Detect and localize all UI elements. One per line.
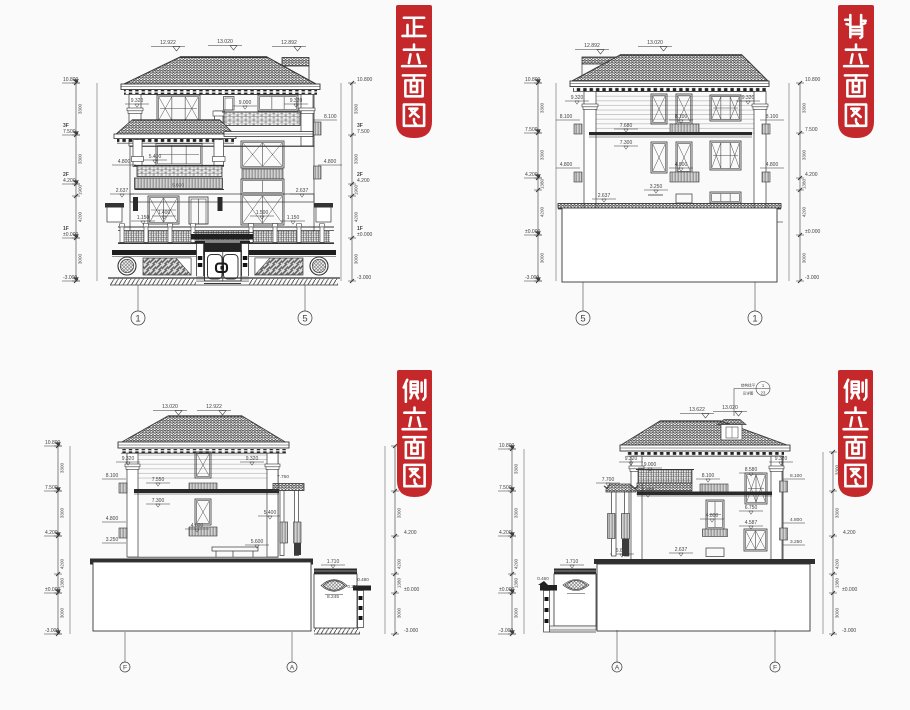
svg-text:±0.000: ±0.000 [45,587,60,593]
svg-text:3300: 3300 [60,507,65,518]
svg-text:12.922: 12.922 [206,404,222,410]
svg-text:5.400: 5.400 [149,154,162,160]
svg-text:±0.000: ±0.000 [842,587,857,593]
svg-text:-3.000: -3.000 [404,628,418,634]
svg-text:8.100: 8.100 [324,114,337,120]
svg-text:13.020: 13.020 [647,40,663,46]
svg-text:12.922: 12.922 [160,40,176,46]
svg-text:7.300: 7.300 [620,140,633,146]
svg-text:4.800: 4.800 [790,517,802,523]
svg-text:0.480: 0.480 [357,577,369,582]
svg-text:5: 5 [302,314,307,325]
svg-text:4200: 4200 [397,558,402,569]
svg-text:3300: 3300 [514,507,519,518]
svg-text:10.800: 10.800 [525,77,541,83]
svg-text:7.300: 7.300 [152,498,165,504]
svg-text:3000: 3000 [397,607,402,618]
svg-text:4.200: 4.200 [357,178,370,184]
svg-text:3300: 3300 [802,149,807,160]
svg-text:5.600: 5.600 [251,539,264,545]
svg-text:7.550: 7.550 [152,477,165,483]
svg-text:±0.000: ±0.000 [404,587,419,593]
svg-text:8.100: 8.100 [790,473,802,479]
svg-text:4200: 4200 [60,558,65,569]
svg-text:7.680: 7.680 [620,123,633,129]
svg-text:9.320: 9.320 [290,98,303,104]
svg-text:3000: 3000 [354,253,359,264]
svg-text:9.320: 9.320 [775,456,788,462]
svg-text:3000: 3000 [540,252,545,263]
svg-text:10.800: 10.800 [805,77,821,83]
svg-text:12.892: 12.892 [584,43,600,49]
svg-text:8.100: 8.100 [675,114,688,120]
svg-text:1: 1 [135,314,140,325]
svg-text:4.200: 4.200 [805,172,818,178]
svg-text:4.800: 4.800 [191,523,204,529]
svg-text:1.710: 1.710 [566,559,579,565]
svg-text:8.580: 8.580 [745,467,758,473]
svg-text:5: 5 [580,314,585,325]
svg-text:13.622: 13.622 [689,407,705,413]
svg-text:5.600: 5.600 [172,183,184,189]
svg-text:8.100: 8.100 [106,473,119,479]
svg-text:-3.000: -3.000 [499,628,513,634]
svg-text:7.760: 7.760 [277,474,289,480]
svg-text:-3.000: -3.000 [805,275,819,281]
svg-text:-3.000: -3.000 [357,275,371,281]
svg-text:6.750: 6.750 [745,505,758,511]
svg-text:3300: 3300 [802,102,807,113]
svg-text:±0.000: ±0.000 [525,229,540,235]
svg-text:4.200: 4.200 [404,530,417,536]
svg-text:3000: 3000 [514,607,519,618]
svg-text:3000: 3000 [60,607,65,618]
svg-text:1.150: 1.150 [137,215,150,221]
svg-text:F: F [773,665,777,672]
svg-text:13.020: 13.020 [162,404,178,410]
svg-text:4200: 4200 [354,211,359,222]
svg-text:7.500: 7.500 [525,127,538,133]
svg-text:13.020: 13.020 [722,405,738,411]
svg-text:3300: 3300 [354,153,359,164]
svg-text:8.100: 8.100 [766,114,779,120]
svg-text:4.200: 4.200 [45,530,58,536]
svg-text:结构找平: 结构找平 [741,383,756,388]
svg-text:3300: 3300 [354,103,359,114]
svg-text:4200: 4200 [802,206,807,217]
svg-text:8.100: 8.100 [702,473,715,479]
svg-text:4.587: 4.587 [745,520,758,526]
svg-text:4200: 4200 [78,211,83,222]
svg-text:4.200: 4.200 [843,530,856,536]
svg-text:4.200: 4.200 [525,172,538,178]
svg-text:1380: 1380 [397,577,402,588]
svg-text:2F: 2F [63,172,69,178]
svg-text:9.320: 9.320 [571,95,584,101]
svg-text:4.800: 4.800 [118,159,131,165]
svg-text:±0.000: ±0.000 [63,232,78,238]
svg-text:±0.000: ±0.000 [499,587,514,593]
svg-text:1.710: 1.710 [327,559,340,565]
svg-text:2.637: 2.637 [675,547,688,553]
svg-text:8.100: 8.100 [560,114,573,120]
svg-text:1: 1 [752,314,757,325]
svg-text:4.800: 4.800 [106,516,119,522]
svg-text:0.460: 0.460 [537,576,549,581]
svg-text:4.800: 4.800 [675,162,688,168]
svg-text:±0.000: ±0.000 [805,229,820,235]
svg-text:4200: 4200 [514,558,519,569]
svg-text:7.500: 7.500 [805,127,818,133]
svg-text:2.637: 2.637 [296,188,309,194]
svg-text:7.700: 7.700 [602,477,615,483]
svg-text:7.500: 7.500 [499,485,512,491]
svg-text:10.800: 10.800 [45,440,61,446]
svg-text:5.400: 5.400 [264,510,277,516]
svg-text:3000: 3000 [802,252,807,263]
svg-text:7.300: 7.300 [642,488,655,494]
svg-text:23: 23 [761,391,766,396]
svg-text:10.800: 10.800 [357,77,373,83]
svg-text:F: F [123,665,127,672]
svg-text:3300: 3300 [835,507,840,518]
svg-text:±0.000: ±0.000 [357,232,372,238]
svg-text:4.200: 4.200 [63,178,76,184]
svg-text:10.800: 10.800 [63,77,79,83]
svg-text:1380: 1380 [835,577,840,588]
svg-text:4200: 4200 [835,558,840,569]
svg-text:2.637: 2.637 [598,193,611,199]
svg-text:-3.000: -3.000 [45,628,59,634]
svg-text:见详图: 见详图 [743,391,754,396]
svg-text:1.150: 1.150 [287,215,300,221]
svg-text:4200: 4200 [540,206,545,217]
svg-text:-3.000: -3.000 [525,275,539,281]
svg-text:A: A [615,665,620,672]
svg-text:3300: 3300 [78,153,83,164]
svg-text:-0.180: -0.180 [346,584,359,589]
svg-text:4.800: 4.800 [766,162,779,168]
svg-text:3000: 3000 [835,607,840,618]
svg-text:1900: 1900 [354,184,359,195]
svg-text:10.800: 10.800 [499,443,515,449]
svg-text:1900: 1900 [78,184,83,195]
svg-text:4.800: 4.800 [560,162,573,168]
svg-text:3300: 3300 [78,103,83,114]
svg-text:3.250: 3.250 [106,537,119,543]
svg-text:1.500: 1.500 [256,210,269,216]
svg-text:8.245: 8.245 [327,594,339,600]
svg-text:7.500: 7.500 [45,485,58,491]
svg-text:12.892: 12.892 [281,40,297,46]
svg-text:9.000: 9.000 [644,462,657,468]
svg-text:3300: 3300 [540,149,545,160]
svg-text:3300: 3300 [540,102,545,113]
svg-text:-3.000: -3.000 [842,628,856,634]
svg-text:13.020: 13.020 [217,39,233,45]
svg-text:1380: 1380 [540,178,545,189]
svg-text:9.320: 9.320 [131,98,144,104]
svg-text:3300: 3300 [397,507,402,518]
svg-text:3000: 3000 [78,253,83,264]
svg-text:3.250: 3.250 [790,539,802,545]
svg-text:9.320: 9.320 [742,95,755,101]
svg-text:3300: 3300 [514,463,519,474]
svg-text:1380: 1380 [802,178,807,189]
svg-text:-3.000: -3.000 [63,275,77,281]
svg-text:1F: 1F [63,226,69,232]
svg-text:4.800: 4.800 [706,513,719,519]
svg-text:9.320: 9.320 [625,456,638,462]
svg-text:7.500: 7.500 [63,129,76,135]
svg-text:A: A [290,665,295,672]
svg-text:2.637: 2.637 [116,188,129,194]
svg-text:7.500: 7.500 [357,129,370,135]
svg-text:9.000: 9.000 [239,100,252,106]
svg-text:3300: 3300 [60,462,65,473]
svg-text:3F: 3F [63,123,69,129]
svg-text:4.800: 4.800 [324,159,337,165]
svg-text:4.200: 4.200 [499,530,512,536]
svg-text:9.320: 9.320 [122,456,135,462]
svg-text:3.250: 3.250 [650,184,663,190]
svg-text:9.320: 9.320 [246,456,259,462]
svg-text:1.400: 1.400 [158,210,171,216]
